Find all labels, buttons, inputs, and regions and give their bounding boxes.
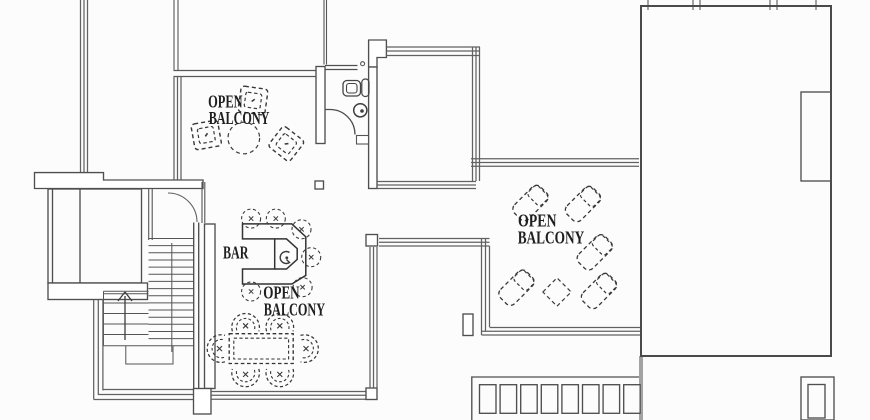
svg-text:BALCONY: BALCONY <box>518 227 585 247</box>
svg-text:BALCONY: BALCONY <box>264 299 326 319</box>
svg-text:BAR: BAR <box>223 243 249 263</box>
svg-text:BALCONY: BALCONY <box>209 108 270 128</box>
